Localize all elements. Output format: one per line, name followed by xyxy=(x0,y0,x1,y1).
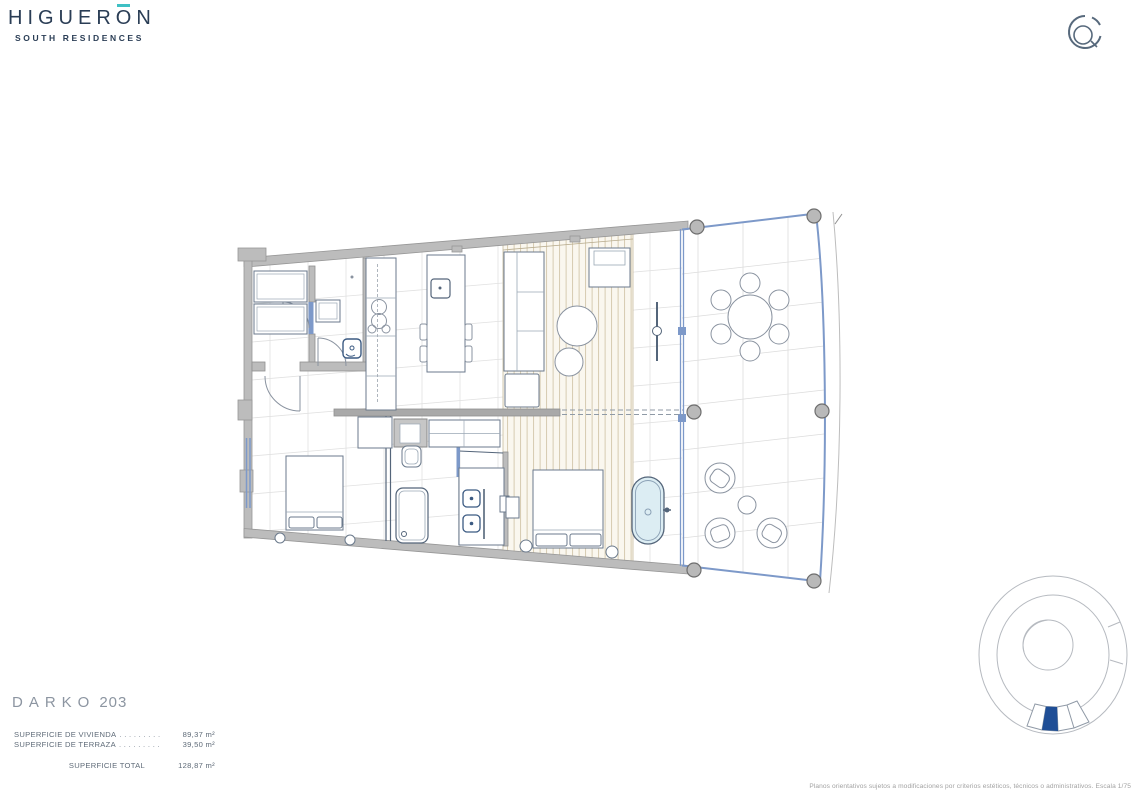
surface-row-vivienda: SUPERFICIE DE VIVIENDA . . . . . . . . .… xyxy=(14,730,215,740)
surface-table: SUPERFICIE DE VIVIENDA . . . . . . . . .… xyxy=(14,730,215,771)
brand-name: HIGUERON xyxy=(8,8,156,28)
leader-dots: . . . . . . . . . xyxy=(116,730,165,740)
bathroom xyxy=(396,446,428,543)
guest-wc xyxy=(316,300,361,358)
master-bed xyxy=(520,470,618,558)
terrace-pivot-door xyxy=(653,302,662,361)
kitchen-counter xyxy=(366,258,396,410)
disclaimer-note: Planos orientativos sujetos a modificaci… xyxy=(809,783,1131,790)
unit-number: 203 xyxy=(99,694,127,711)
closet-row xyxy=(358,417,500,448)
brand-logo: HIGUERON SOUTH RESIDENCES xyxy=(8,8,156,43)
facade-curve xyxy=(829,212,842,593)
unit-title: DARKO203 xyxy=(12,694,127,711)
bedroom-2 xyxy=(247,438,356,545)
surface-value: 39,50 m² xyxy=(165,740,215,750)
tv-unit xyxy=(589,248,630,287)
brand-subtitle: SOUTH RESIDENCES xyxy=(15,34,156,43)
surface-row-total: SUPERFICIE TOTAL 128,87 m² xyxy=(14,761,215,771)
master-vanity xyxy=(459,468,509,545)
terrace xyxy=(682,205,825,595)
site-key-plan-icon xyxy=(979,576,1127,734)
surface-value: 89,37 m² xyxy=(165,730,215,740)
sofa xyxy=(504,252,544,407)
floor-plan xyxy=(0,0,1136,800)
leader-dots: . . . . . . . . . xyxy=(116,740,165,750)
unit-name: DARKO xyxy=(12,694,95,711)
floorplan-sheet: { "brand": { "name_pre": "HIGUER", "name… xyxy=(0,0,1136,800)
surface-row-terraza: SUPERFICIE DE TERRAZA . . . . . . . . . … xyxy=(14,740,215,750)
surface-label: SUPERFICIE DE VIVIENDA xyxy=(14,730,116,740)
bed-2 xyxy=(275,456,355,545)
wc-sink xyxy=(343,339,361,358)
surface-total-value: 128,87 m² xyxy=(165,761,215,771)
brand-accent-letter: O xyxy=(116,8,137,28)
compass-icon xyxy=(1069,16,1100,48)
kitchen-island xyxy=(420,255,472,372)
surface-total-label: SUPERFICIE TOTAL xyxy=(69,761,145,771)
bathtub xyxy=(632,477,671,544)
surface-label: SUPERFICIE DE TERRAZA xyxy=(14,740,116,750)
